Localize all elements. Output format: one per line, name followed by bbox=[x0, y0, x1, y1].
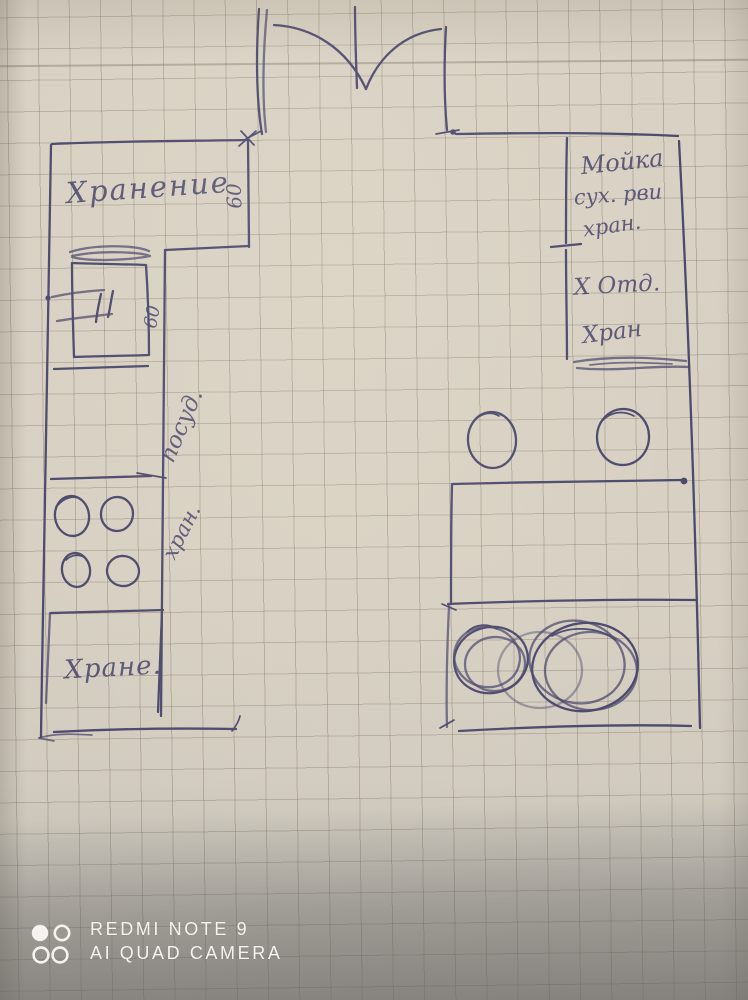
photo-of-floor-plan-sketch: Хранение 60 60 посуд. хран. Хране. Мойка… bbox=[0, 0, 748, 1000]
camera-watermark: REDMI NOTE 9 AI QUAD CAMERA bbox=[27, 920, 282, 968]
dimension-60-middle: 60 bbox=[142, 304, 164, 330]
label-separate-compartment: Х Отд. bbox=[573, 272, 660, 299]
dimension-60-top: 60 bbox=[224, 183, 245, 209]
label-storage-bottom-left: Хране. bbox=[64, 652, 163, 683]
watermark-device-name: REDMI NOTE 9 bbox=[90, 920, 282, 938]
redmi-camera-logo-icon bbox=[27, 922, 75, 968]
watermark-camera-name: AI QUAD CAMERA bbox=[90, 944, 282, 962]
